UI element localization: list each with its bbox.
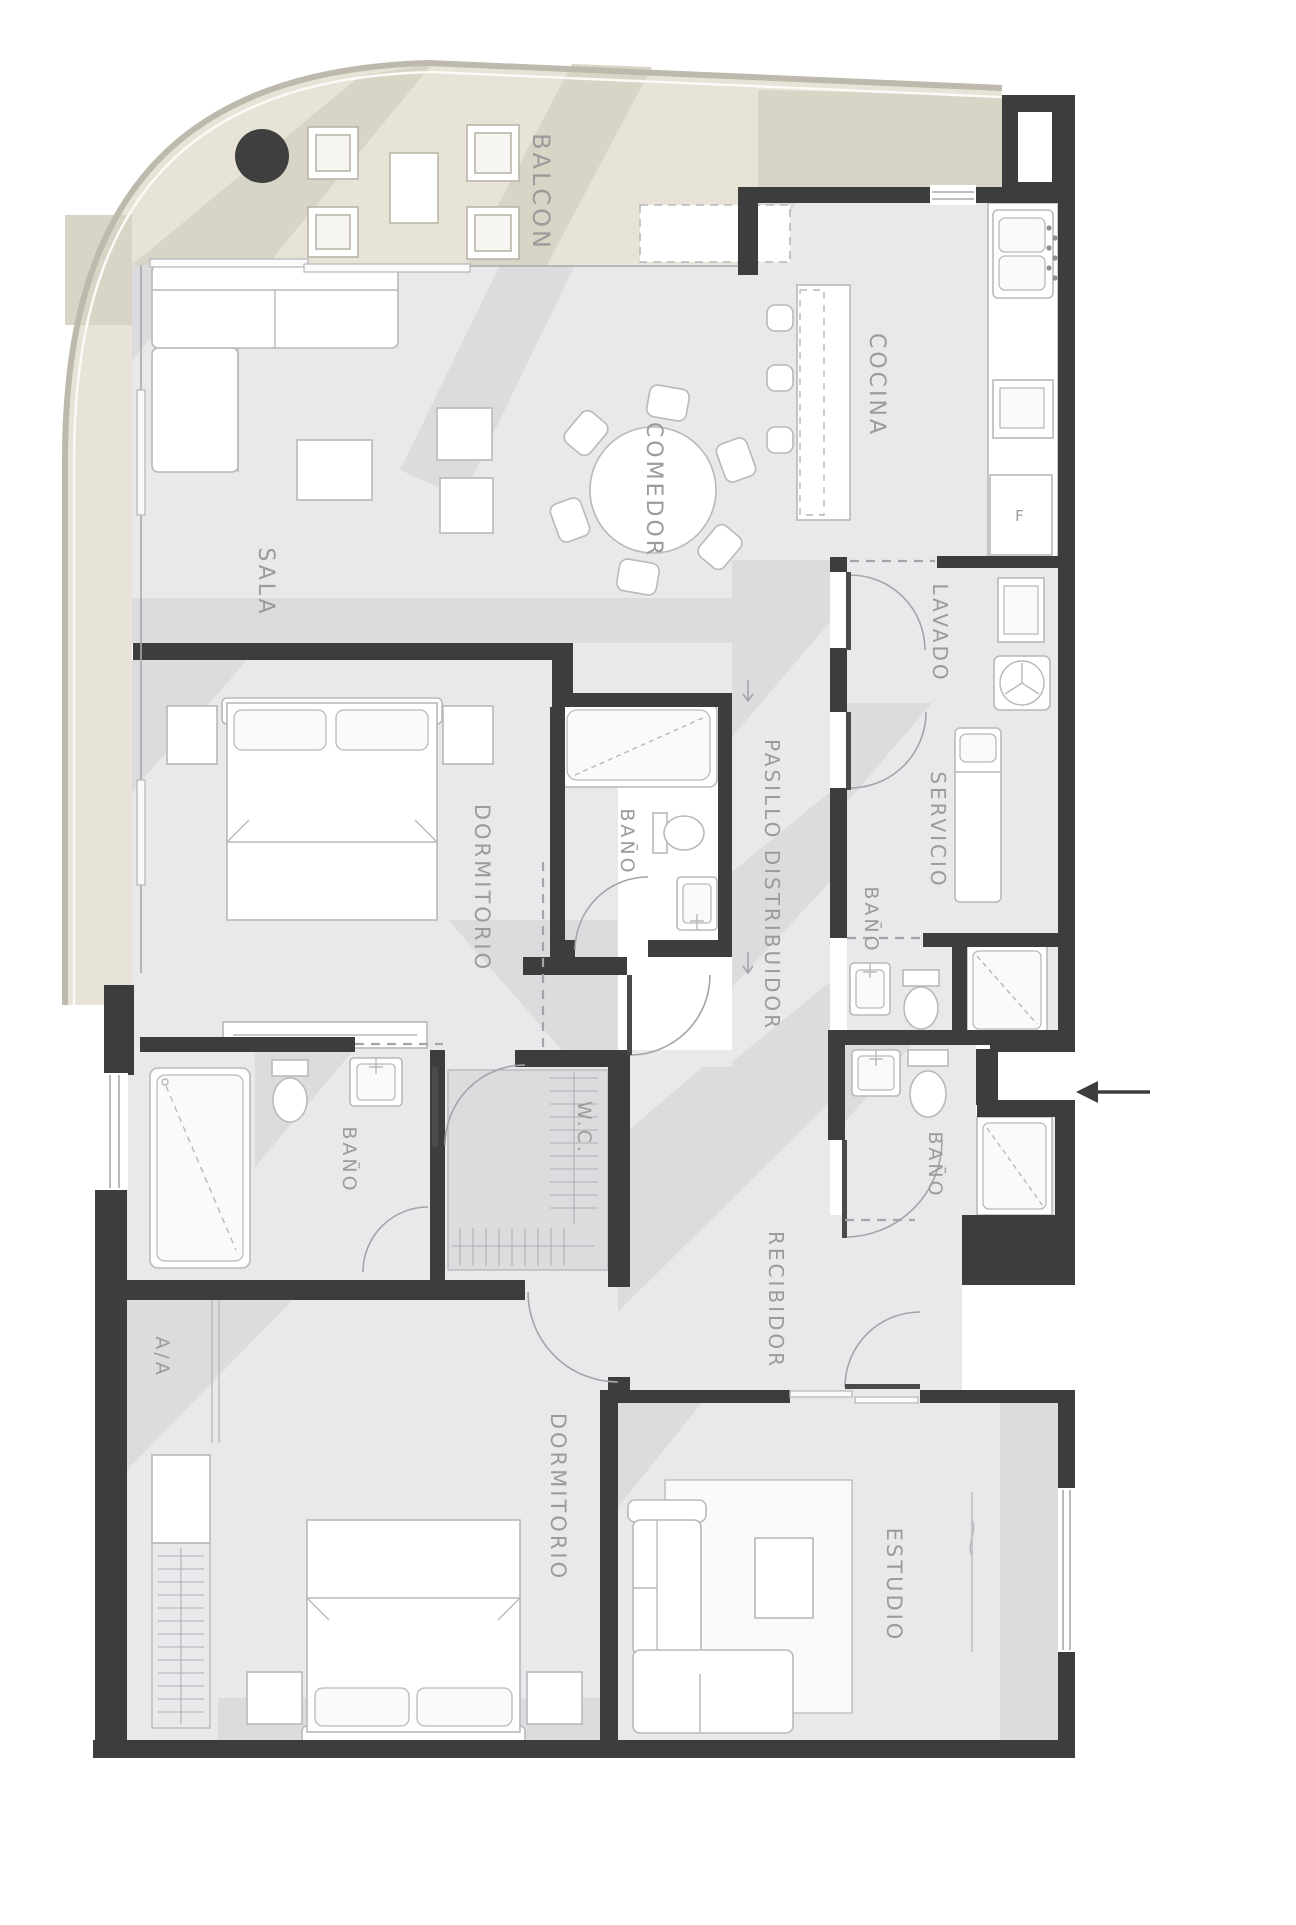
planter-tree-icon (235, 129, 289, 183)
floor-plan-svg: F (0, 0, 1296, 1920)
bar-stool (767, 365, 793, 391)
room-label-servicio: SERVICIO (926, 771, 950, 888)
bedroom1-bed (222, 698, 442, 920)
room-label-pasillo: PASILLO DISTRIBUIDOR (760, 739, 784, 1031)
toilet-icon (272, 1060, 308, 1076)
nightstand (167, 706, 217, 764)
room-label-lavado: LAVADO (928, 583, 952, 682)
room-label-cocina: COCINA (864, 333, 889, 437)
room-label-bano-dorm1: BAÑO (616, 808, 639, 875)
side-table (437, 408, 492, 460)
bar-stool (767, 305, 793, 331)
room-label-bano-master: BAÑO (338, 1126, 361, 1193)
room-label-dormitorio1: DORMITORIO (470, 804, 494, 972)
shower-icon (977, 1117, 1052, 1215)
room-label-bano-servicio: BAÑO (860, 886, 883, 953)
shower-icon (150, 1068, 250, 1268)
nightstand (443, 706, 493, 764)
room-label-estudio: ESTUDIO (882, 1528, 906, 1643)
coffee-table (297, 440, 372, 500)
floor-plan-page: F (0, 0, 1296, 1920)
toilet-icon (908, 1050, 948, 1066)
desk-table (755, 1538, 813, 1618)
room-label-dormitorio2: DORMITORIO (546, 1413, 570, 1581)
bedroom2-bed (302, 1520, 525, 1750)
room-label-aa: A/A (151, 1336, 173, 1377)
room-label-bano-guest: BAÑO (924, 1131, 947, 1198)
entrance-arrow-icon (1076, 1081, 1150, 1103)
bar-stool (767, 427, 793, 453)
bathtub-icon (560, 703, 717, 787)
toilet-icon (903, 970, 939, 986)
nightstand (527, 1672, 582, 1724)
shower-icon (967, 945, 1047, 1035)
service-room-bed (955, 728, 1001, 902)
room-label-balcon: BALCON (527, 133, 555, 251)
room-label-sala: SALA (253, 547, 278, 616)
room-label-comedor: COMEDOR (641, 422, 666, 558)
side-table (440, 478, 493, 533)
nightstand (247, 1672, 302, 1724)
room-label-wc: W.C. (573, 1101, 595, 1155)
room-label-recibidor: RECIBIDOR (764, 1231, 788, 1369)
fridge-label: F (1015, 507, 1027, 525)
